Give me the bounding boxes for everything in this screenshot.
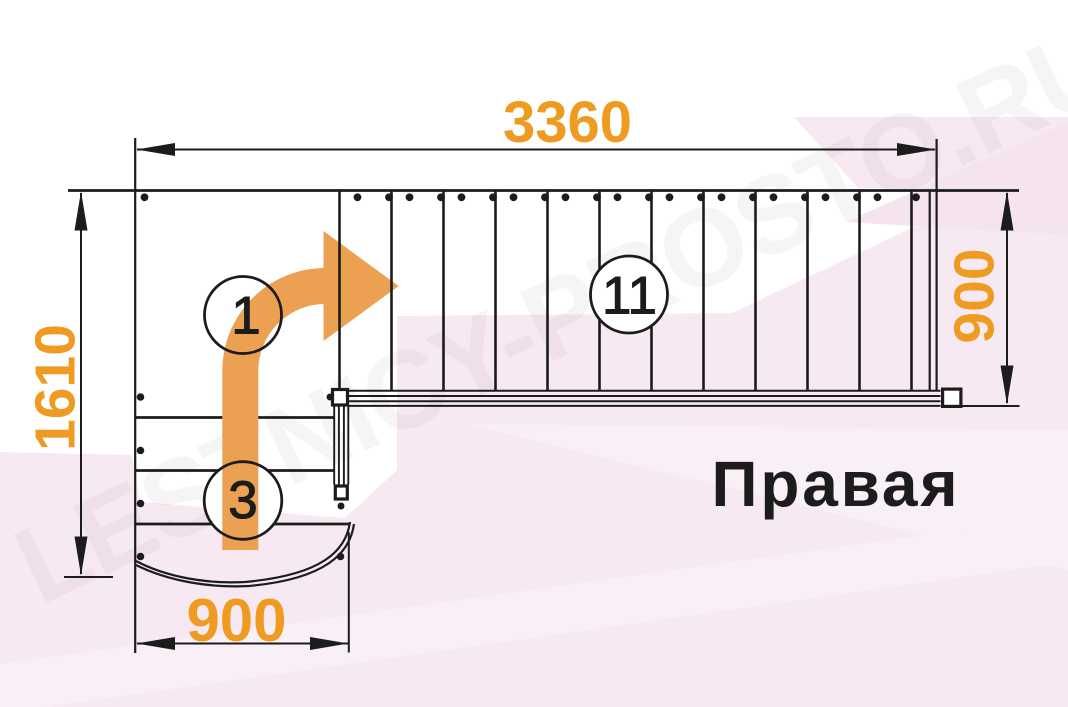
svg-text:1: 1 xyxy=(231,287,260,346)
svg-text:Правая: Правая xyxy=(712,448,961,520)
svg-text:3: 3 xyxy=(228,471,257,530)
svg-text:11: 11 xyxy=(602,267,657,326)
svg-text:3360: 3360 xyxy=(503,90,632,155)
svg-text:1610: 1610 xyxy=(24,324,88,451)
svg-text:900: 900 xyxy=(943,248,1007,343)
svg-text:900: 900 xyxy=(186,587,286,654)
